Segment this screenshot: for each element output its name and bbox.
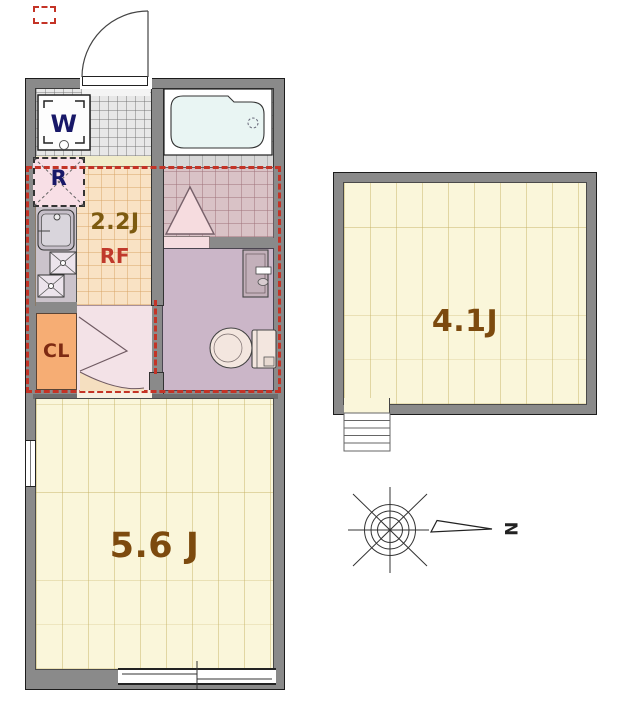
loft-steps bbox=[344, 413, 390, 451]
washing-machine-label: W bbox=[38, 112, 90, 136]
floor-plan: W R 2.2J RF CL 5.6 J 4.1J N bbox=[0, 0, 619, 702]
entrance-door-swing bbox=[82, 11, 148, 77]
entrance-step bbox=[82, 89, 150, 96]
loft-boundary-inner-segment bbox=[154, 300, 157, 374]
closet-label: CL bbox=[36, 342, 77, 361]
bottom-sliding-window bbox=[118, 668, 276, 685]
compass bbox=[348, 487, 492, 573]
kitchen-size-label: 2.2J bbox=[77, 212, 153, 234]
loft-room-floor bbox=[344, 183, 586, 404]
loft-floor-opening-patch bbox=[344, 398, 390, 415]
compass-north-label: N bbox=[496, 518, 518, 540]
kitchen-loft-label: RF bbox=[77, 246, 153, 266]
loft-vent-marker bbox=[33, 6, 56, 24]
bathroom-floor bbox=[163, 89, 273, 168]
entrance-door-leaf-closed bbox=[82, 76, 148, 86]
loft-room-size-label: 4.1J bbox=[344, 307, 586, 337]
left-window bbox=[25, 440, 36, 487]
refrigerator-label: R bbox=[33, 168, 85, 189]
main-room-size-label: 5.6 J bbox=[36, 529, 273, 564]
north-arrow bbox=[431, 521, 492, 533]
